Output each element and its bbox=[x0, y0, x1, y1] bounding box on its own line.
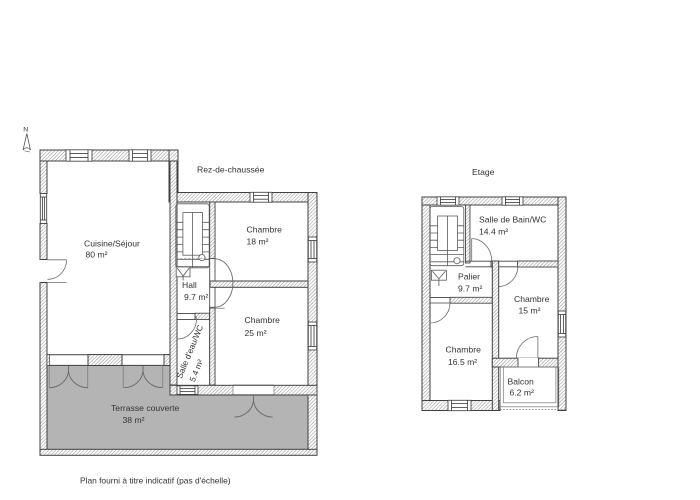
svg-text:Salle de Bain/WC: Salle de Bain/WC bbox=[479, 214, 546, 224]
svg-text:Etage: Etage bbox=[472, 167, 495, 177]
svg-text:18 m²: 18 m² bbox=[247, 237, 269, 247]
svg-text:Chambre: Chambre bbox=[247, 225, 283, 235]
svg-text:38 m²: 38 m² bbox=[123, 415, 145, 425]
svg-text:9.7 m²: 9.7 m² bbox=[458, 283, 482, 293]
svg-text:Rez-de-chaussée: Rez-de-chaussée bbox=[197, 165, 265, 175]
svg-text:Palier: Palier bbox=[458, 271, 480, 281]
svg-text:16.5 m²: 16.5 m² bbox=[448, 357, 477, 367]
svg-text:Chambre: Chambre bbox=[514, 294, 550, 304]
svg-text:6.2 m²: 6.2 m² bbox=[510, 388, 534, 398]
svg-text:Chambre: Chambre bbox=[446, 344, 482, 354]
svg-text:15 m²: 15 m² bbox=[519, 306, 541, 316]
svg-text:9.7 m²: 9.7 m² bbox=[184, 292, 208, 302]
svg-text:Cuisine/Séjour: Cuisine/Séjour bbox=[84, 238, 140, 248]
svg-text:Hall: Hall bbox=[182, 280, 197, 290]
svg-text:Balcon: Balcon bbox=[508, 376, 534, 386]
svg-text:25 m²: 25 m² bbox=[245, 328, 267, 338]
svg-text:Terrasse couverte: Terrasse couverte bbox=[111, 403, 180, 413]
svg-text:Chambre: Chambre bbox=[245, 315, 281, 325]
svg-text:80 m²: 80 m² bbox=[86, 249, 108, 259]
svg-text:14.4 m²: 14.4 m² bbox=[479, 226, 508, 236]
svg-text:N: N bbox=[23, 127, 28, 134]
svg-text:Plan fourni à titre indicatif: Plan fourni à titre indicatif (pas d'éch… bbox=[80, 475, 231, 485]
